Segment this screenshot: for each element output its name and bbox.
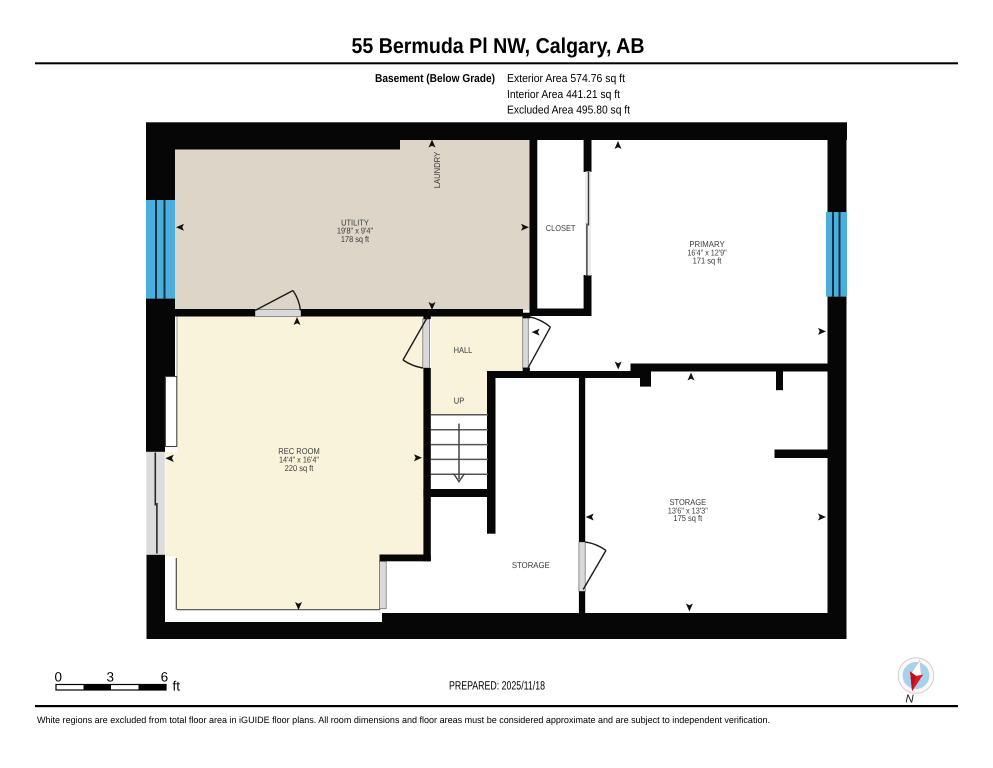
svg-text:UP: UP <box>454 395 465 405</box>
svg-text:Excluded Area 495.80 sq ft: Excluded Area 495.80 sq ft <box>507 104 631 116</box>
svg-text:0: 0 <box>54 670 62 685</box>
svg-text:CLOSET: CLOSET <box>546 223 576 233</box>
svg-text:ft: ft <box>173 679 181 694</box>
svg-text:220 sq ft: 220 sq ft <box>285 463 314 473</box>
svg-text:STORAGE: STORAGE <box>512 560 550 570</box>
svg-text:3: 3 <box>107 670 115 685</box>
svg-text:N: N <box>905 694 914 706</box>
svg-text:6: 6 <box>161 670 169 685</box>
svg-text:178 sq ft: 178 sq ft <box>341 234 370 244</box>
svg-text:White regions are excluded fro: White regions are excluded from total fl… <box>37 715 770 725</box>
svg-text:171 sq ft: 171 sq ft <box>693 256 722 266</box>
svg-text:PREPARED: 2025/11/18: PREPARED: 2025/11/18 <box>449 679 545 693</box>
svg-text:HALL: HALL <box>454 345 473 355</box>
svg-text:175 sq ft: 175 sq ft <box>673 513 702 523</box>
svg-text:Exterior Area 574.76 sq ft: Exterior Area 574.76 sq ft <box>507 73 626 85</box>
svg-text:Interior Area 441.21 sq ft: Interior Area 441.21 sq ft <box>507 89 621 101</box>
svg-text:55 Bermuda Pl NW, Calgary, AB: 55 Bermuda Pl NW, Calgary, AB <box>352 34 645 58</box>
svg-text:Basement (Below Grade): Basement (Below Grade) <box>375 73 495 85</box>
svg-text:LAUNDRY: LAUNDRY <box>432 152 442 189</box>
